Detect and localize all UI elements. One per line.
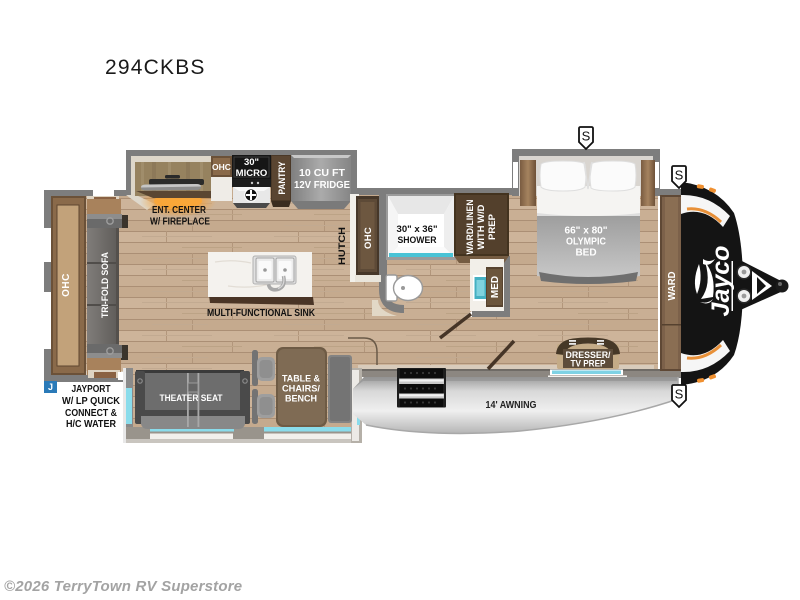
svg-text:JAYPORT: JAYPORT [72, 384, 111, 395]
svg-text:TV PREP: TV PREP [571, 359, 606, 369]
svg-text:THEATER SEAT: THEATER SEAT [160, 393, 223, 404]
svg-text:30": 30" [244, 157, 259, 168]
svg-text:©2026 TerryTown RV Superstore: ©2026 TerryTown RV Superstore [4, 578, 242, 595]
svg-text:WARD/LINEN: WARD/LINEN [465, 199, 476, 254]
svg-text:294CKBS: 294CKBS [105, 56, 206, 79]
svg-text:S: S [675, 387, 684, 402]
svg-text:CONNECT &: CONNECT & [65, 408, 117, 419]
svg-text:S: S [675, 168, 684, 183]
svg-text:WITH W/D: WITH W/D [476, 204, 487, 249]
svg-text:OHC: OHC [61, 273, 72, 297]
svg-text:MICRO: MICRO [236, 168, 268, 179]
svg-text:ENT. CENTER: ENT. CENTER [152, 205, 207, 216]
svg-text:OHC: OHC [363, 227, 374, 249]
svg-text:J: J [48, 382, 53, 392]
svg-text:TRI-FOLD SOFA: TRI-FOLD SOFA [100, 252, 111, 318]
svg-text:TABLE &: TABLE & [282, 374, 320, 384]
svg-text:S: S [582, 129, 591, 144]
svg-text:CHAIRS/: CHAIRS/ [282, 384, 320, 394]
svg-text:12V FRIDGE: 12V FRIDGE [294, 180, 350, 191]
svg-text:HUTCH: HUTCH [337, 227, 348, 265]
svg-text:PREP: PREP [487, 213, 498, 240]
svg-text:WARD: WARD [667, 272, 678, 301]
svg-text:MULTI-FUNCTIONAL SINK: MULTI-FUNCTIONAL SINK [207, 307, 315, 319]
svg-text:30" x 36": 30" x 36" [397, 224, 438, 235]
svg-text:OLYMPIC: OLYMPIC [566, 237, 606, 248]
svg-text:14' AWNING: 14' AWNING [486, 399, 537, 411]
svg-text:H/C WATER: H/C WATER [66, 419, 117, 430]
svg-text:BED: BED [575, 248, 596, 259]
svg-text:OHC: OHC [212, 162, 231, 172]
svg-text:66" x 80": 66" x 80" [565, 226, 608, 237]
svg-text:PANTRY: PANTRY [277, 161, 288, 195]
svg-text:MED: MED [490, 276, 501, 298]
svg-text:10 CU FT: 10 CU FT [299, 168, 345, 179]
svg-text:SHOWER: SHOWER [398, 235, 437, 246]
svg-text:BENCH: BENCH [285, 394, 317, 404]
svg-text:W/ FIREPLACE: W/ FIREPLACE [150, 217, 210, 228]
svg-text:W/ LP QUICK: W/ LP QUICK [62, 396, 121, 407]
